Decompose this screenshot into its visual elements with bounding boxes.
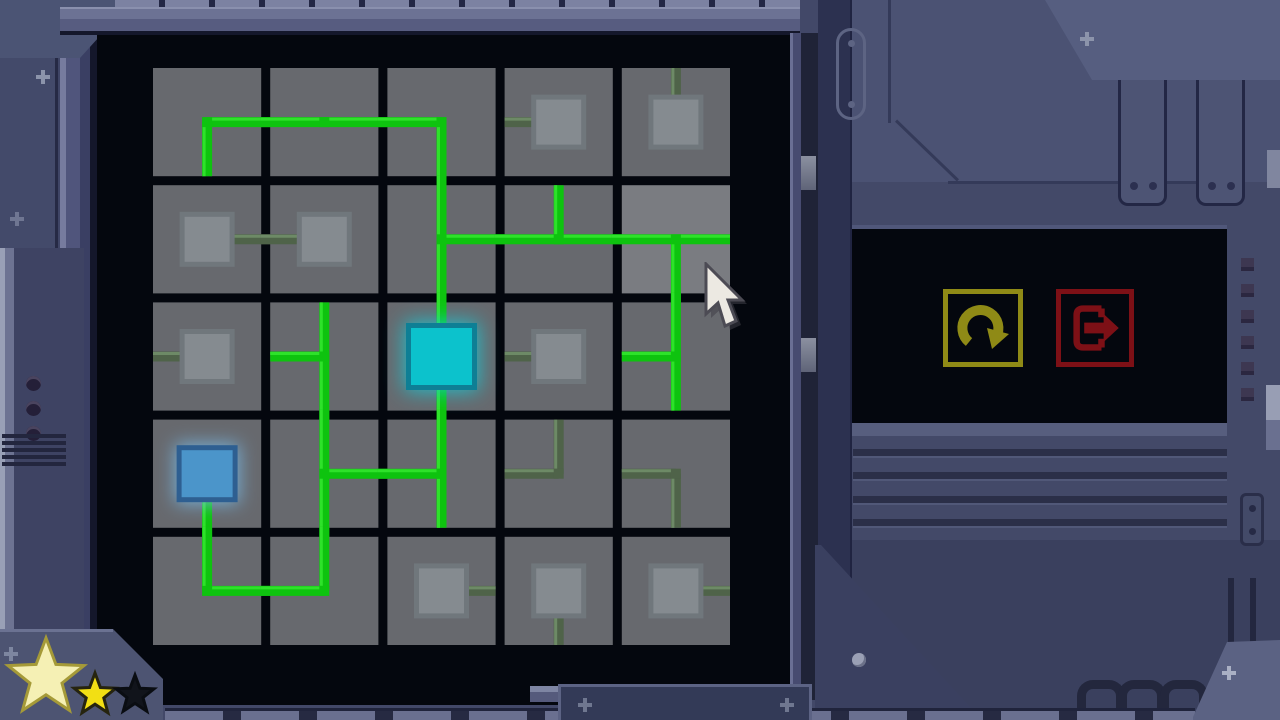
edge-bar [1266, 385, 1280, 450]
hinge-icon [801, 338, 816, 372]
puzzle-board [153, 68, 730, 645]
vent-groove [853, 496, 1227, 505]
tile-r4-c4[interactable] [622, 537, 730, 645]
indicator-light [1241, 336, 1254, 349]
tile-r0-c4[interactable] [622, 68, 730, 176]
tile-r2-c3[interactable] [505, 302, 613, 410]
vent-groove [853, 449, 1227, 458]
tile-r4-c2[interactable] [387, 537, 495, 645]
tile-r0-c3[interactable] [505, 68, 613, 176]
button-console [852, 229, 1227, 423]
vent-groove [853, 472, 1227, 481]
rivet-icon [26, 401, 41, 416]
bottom-bracket [530, 686, 558, 702]
tile-r0-c2[interactable] [377, 68, 495, 186]
indicator-light [1241, 388, 1254, 401]
game-screen [0, 0, 1280, 720]
tile-r1-c0[interactable] [153, 185, 271, 293]
hinge-icon [801, 156, 816, 190]
strap-detail [1118, 80, 1167, 206]
screw-icon [36, 70, 50, 84]
screw-icon [10, 212, 24, 226]
tile-r1-c3[interactable] [495, 185, 623, 293]
restart-icon [954, 299, 1012, 357]
tile-r4-c3[interactable] [505, 537, 613, 645]
screw-icon [1222, 666, 1236, 680]
tile-r2-c2[interactable] [387, 292, 495, 420]
tile-r3-c2[interactable] [377, 410, 495, 528]
tile-r3-c3[interactable] [505, 420, 613, 528]
tile-r4-c1[interactable] [260, 527, 378, 645]
indicator-light [1241, 310, 1254, 323]
screw-icon [780, 698, 794, 712]
rivet-icon [852, 653, 866, 667]
exit-button[interactable] [1056, 289, 1134, 367]
tile-r0-c0[interactable] [153, 68, 271, 176]
star-large-filled [8, 638, 84, 710]
tile-r1-c1[interactable] [260, 185, 378, 293]
tile-r3-c1[interactable] [270, 410, 388, 538]
bezel-top-bar2 [60, 19, 800, 31]
tile-r2-c1[interactable] [270, 302, 378, 420]
screw-icon [1080, 32, 1094, 46]
star-small-empty [116, 675, 154, 711]
restart-button[interactable] [943, 289, 1023, 367]
capsule-detail [836, 28, 866, 120]
mouse-cursor-icon [704, 262, 752, 336]
indicator-light [1241, 362, 1254, 375]
left-mid-plate [0, 58, 58, 248]
left-lower-panel [0, 248, 84, 630]
edge-bar [1267, 150, 1280, 188]
indicator-light [1241, 258, 1254, 271]
rivet-icon [26, 376, 41, 391]
tile-r3-c4[interactable] [622, 420, 730, 528]
star-medium-filled [74, 673, 116, 713]
tile-r2-c0[interactable] [153, 302, 261, 410]
bezel-top-tabs [115, 0, 800, 7]
star-rating [0, 620, 180, 720]
tile-r0-c1[interactable] [260, 68, 388, 176]
bottom-plate [558, 684, 812, 720]
vent-groove [853, 519, 1227, 528]
bezel-top-bar [60, 7, 800, 19]
tile-r1-c2[interactable] [387, 175, 505, 303]
tile-r3-c0[interactable] [153, 420, 261, 538]
side-panel-small [1240, 493, 1264, 546]
screw-icon [578, 698, 592, 712]
strap-detail [1196, 80, 1245, 206]
indicator-light [1241, 284, 1254, 297]
exit-icon [1068, 301, 1122, 355]
